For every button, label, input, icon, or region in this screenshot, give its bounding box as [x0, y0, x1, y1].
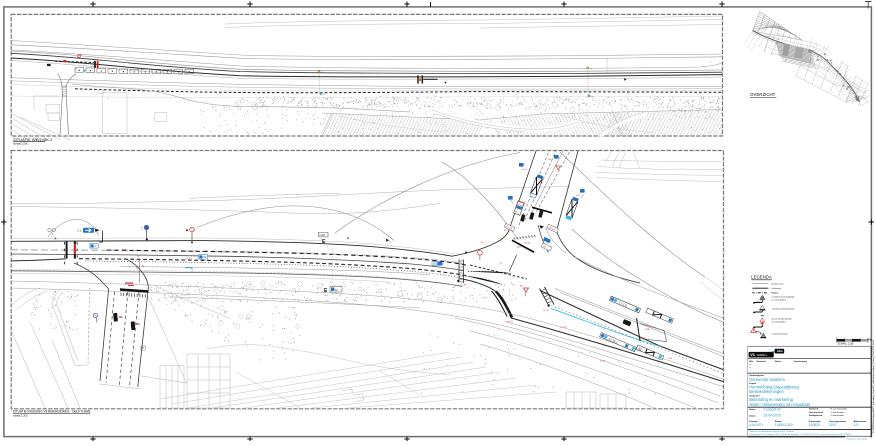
svg-text:VERWD e: VERWD e	[757, 354, 769, 357]
svg-text:incl. verkeersbordpaal: incl. verkeersbordpaal	[772, 321, 787, 323]
svg-text:Goedgekeurd: Goedgekeurd	[809, 414, 823, 417]
svg-text:infra: infra	[777, 349, 783, 353]
svg-text:vz 2.08: vz 2.08	[560, 327, 568, 329]
svg-text:P:\140820\tekeningen\4207_bebo: P:\140820\tekeningen\4207_bebording_wegv…	[872, 339, 875, 433]
svg-text:23-04-2025: 23-04-2025	[763, 414, 780, 418]
svg-text:2 1: 2 1	[78, 229, 82, 233]
svg-text:J. den Breejen: J. den Breejen	[830, 414, 844, 417]
svg-text:1b: 1b	[323, 94, 325, 96]
svg-text:Bestekstekeningen: Bestekstekeningen	[749, 389, 784, 394]
svg-text:SITUATIE KRUISING VERGIERDEWEG: SITUATIE KRUISING VERGIERDEWEG - DELFTLA…	[13, 409, 91, 414]
svg-text:LEGENDA: LEGENDA	[751, 275, 772, 280]
svg-text:1x90: 1x90	[319, 233, 325, 237]
svg-text:A1x1470: A1x1470	[749, 423, 762, 427]
svg-text:Gecontroleerd: Gecontroleerd	[809, 411, 824, 414]
svg-text:Getekend: Getekend	[809, 408, 819, 411]
svg-text:123.08: 123.08	[524, 243, 531, 245]
svg-text:Gemeente Haarlem: Gemeente Haarlem	[749, 377, 785, 382]
svg-text:140820: 140820	[809, 423, 820, 427]
svg-text:Omschrijving: Omschrijving	[794, 360, 808, 363]
svg-text:1/3: 1/3	[854, 423, 859, 427]
svg-text:J. den Breejen: J. den Breejen	[830, 411, 844, 414]
svg-text:Hoogoorddreef 15 | Postbus 123: Hoogoorddreef 15 | Postbus 1234 | 1100 A…	[749, 433, 851, 436]
svg-text:1:500/1:200: 1:500/1:200	[775, 423, 793, 427]
svg-text:schaal 1:500: schaal 1:500	[13, 141, 28, 145]
svg-text:Printdatum: 23-04-2025: Printdatum: 23-04-2025	[846, 438, 868, 441]
svg-text:vz 2.4: vz 2.4	[543, 310, 549, 312]
svg-text:Wijz.: Wijz.	[749, 361, 754, 363]
svg-text:Status: Status	[749, 408, 756, 411]
svg-text:1a: 1a	[321, 71, 323, 73]
svg-text:SCHAAL 1:200: SCHAAL 1:200	[837, 343, 854, 346]
svg-text:41248: 41248	[640, 338, 647, 340]
svg-text:Wegvak 2: Volkstuinvereniging,: Wegvak 2: Volkstuinvereniging, stal en b…	[749, 402, 810, 407]
svg-text:12.08: 12.08	[600, 361, 606, 363]
svg-text:2b: 2b	[591, 96, 593, 98]
svg-text:Z-08: Z-08	[122, 250, 127, 252]
svg-text:OVERZICHT: OVERZICHT	[750, 92, 776, 97]
svg-text:Datorand: Datorand	[757, 360, 767, 363]
svg-text:vz 2.1: vz 2.1	[186, 258, 193, 260]
svg-text:Datum: Datum	[749, 414, 756, 417]
svg-text:240.5: 240.5	[517, 247, 523, 249]
svg-text:VS: VS	[750, 353, 755, 357]
svg-text:Witteveen Van Bastgoed en Inge: Witteveen Van Bastgoed en Ingenieurs B.V…	[749, 430, 794, 433]
svg-text:schaal 1:200: schaal 1:200	[13, 413, 28, 417]
svg-text:incl. verkeersbordpaal: incl. verkeersbordpaal	[772, 299, 787, 301]
svg-text:STAL: STAL	[645, 328, 651, 331]
svg-text:SITUATIE WEGVAK 2: SITUATIE WEGVAK 2	[13, 137, 53, 142]
svg-text:4207: 4207	[829, 423, 837, 427]
svg-text:Concept 02: Concept 02	[763, 407, 780, 411]
svg-text:R. van Coeverden: R. van Coeverden	[830, 408, 848, 411]
svg-text:2a: 2a	[590, 68, 592, 70]
svg-text:C: C	[94, 244, 96, 248]
svg-text:vz 0.3: vz 0.3	[507, 321, 513, 323]
svg-text:Status: Status	[775, 360, 782, 363]
